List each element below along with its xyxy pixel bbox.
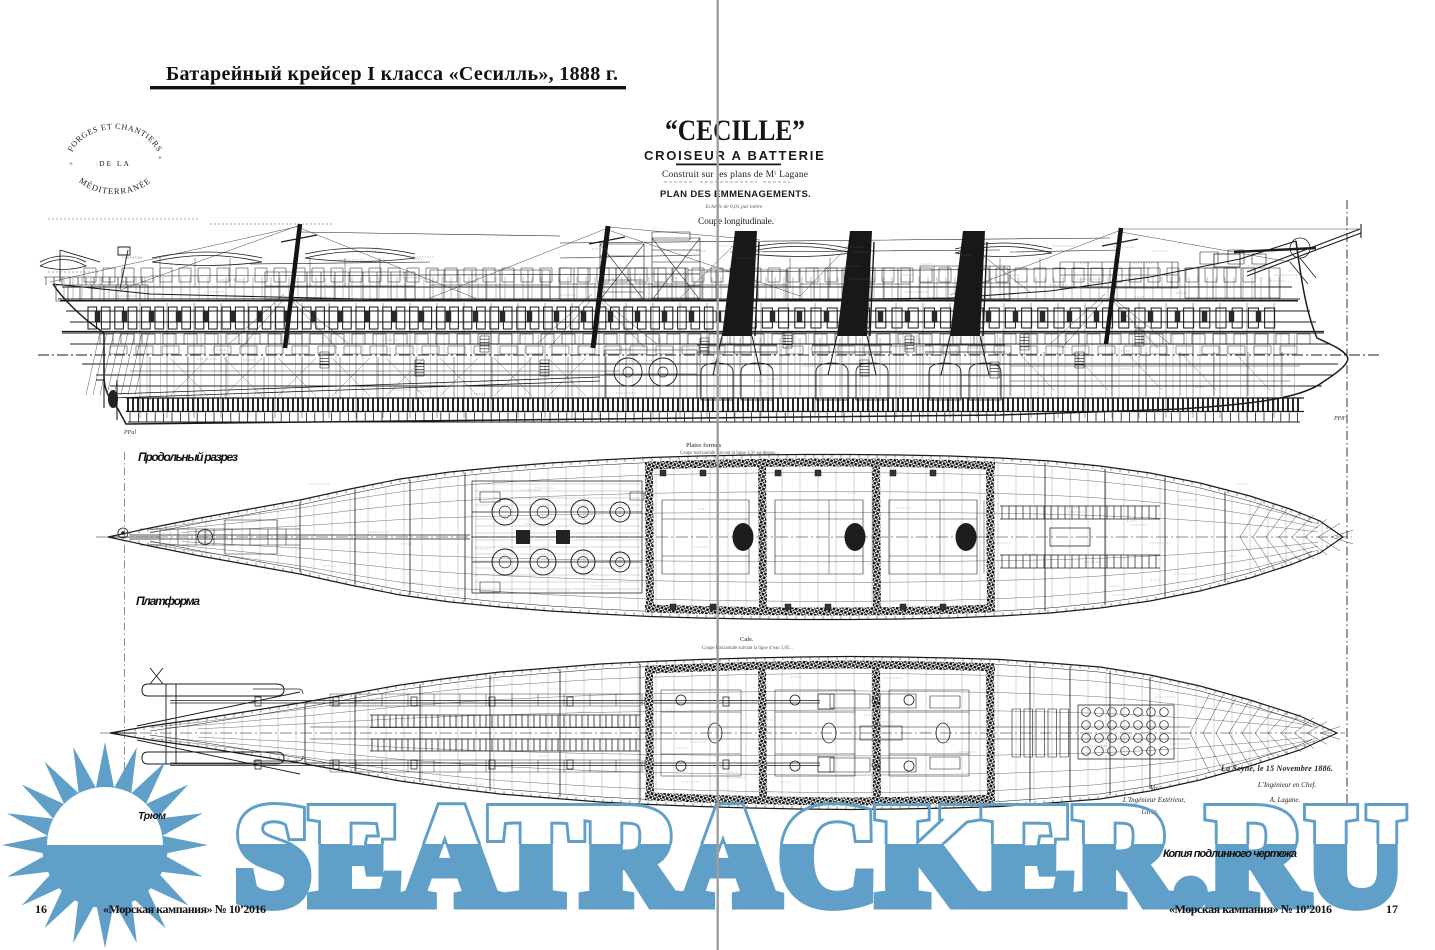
svg-text:Трюм: Трюм — [138, 810, 166, 822]
svg-text:17: 17 — [1386, 902, 1398, 916]
svg-text:Coupe longitudinale.: Coupe longitudinale. — [698, 217, 774, 227]
svg-text:Construit sur les plans de Mʳ: Construit sur les plans de Mʳ Lagane — [662, 170, 808, 180]
svg-text:+: + — [69, 160, 73, 168]
svg-text:Копия подлинного чертежа: Копия подлинного чертежа — [1163, 848, 1297, 860]
svg-text:Продольный разрез: Продольный разрез — [138, 450, 238, 464]
svg-text:«Морская кампания» № 10’2016: «Морская кампания» № 10’2016 — [103, 902, 266, 916]
svg-text:«Морская кампания» № 10’2016: «Морская кампания» № 10’2016 — [1169, 902, 1332, 916]
svg-text:PLAN DES EMMENAGEMENTS.: PLAN DES EMMENAGEMENTS. — [660, 189, 812, 200]
svg-text:+: + — [158, 154, 162, 162]
svg-text:Coupe horizontale suivant la l: Coupe horizontale suivant la ligne d’eau… — [702, 646, 793, 651]
svg-text:Cale.: Cale. — [740, 636, 754, 643]
svg-text:Батарейный крейсер I класса «: Батарейный крейсер I класса «Сесилль», 1… — [166, 63, 618, 85]
svg-text:Echelle de 0,01 par mètre: Echelle de 0,01 par mètre — [705, 204, 763, 210]
svg-text:DE LA: DE LA — [99, 159, 131, 168]
svg-text:Платформа: Платформа — [136, 594, 200, 608]
svg-text:Plates formes: Plates formes — [686, 442, 722, 449]
svg-text:PPal: PPal — [123, 430, 136, 436]
svg-text:MÉDITERRANÉE: MÉDITERRANÉE — [77, 175, 152, 196]
svg-text:“CECILLE”: “CECILLE” — [665, 114, 805, 147]
svg-text:CROISEUR A BATTERIE: CROISEUR A BATTERIE — [644, 148, 826, 163]
svg-text:FORGES ET CHANTIERS: FORGES ET CHANTIERS — [66, 122, 164, 153]
svg-text:PP8′: PP8′ — [1333, 416, 1346, 422]
svg-text:La Seyne, le 15 Novembre 1886.: La Seyne, le 15 Novembre 1886. — [1220, 764, 1333, 773]
svg-text:16: 16 — [35, 902, 47, 916]
